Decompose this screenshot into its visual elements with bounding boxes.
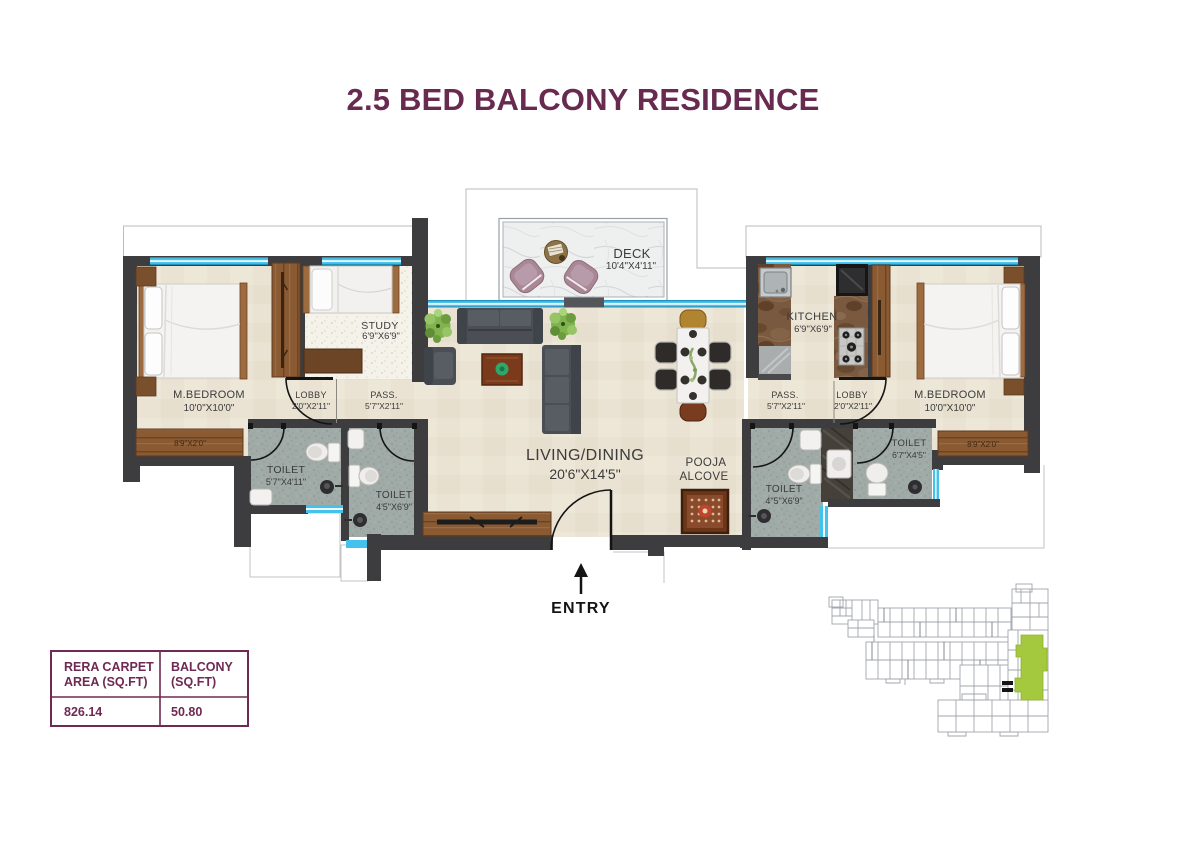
svg-text:(SQ.FT): (SQ.FT) (171, 675, 216, 689)
svg-text:4"5"X6'9": 4"5"X6'9" (765, 496, 802, 506)
svg-text:PASS.: PASS. (771, 390, 798, 400)
svg-text:ALCOVE: ALCOVE (679, 471, 728, 483)
svg-text:5'7"X2'11": 5'7"X2'11" (365, 401, 403, 411)
svg-text:4'5"X6'9": 4'5"X6'9" (376, 502, 412, 512)
svg-text:5'7"X2'11": 5'7"X2'11" (767, 401, 805, 411)
svg-text:6'9"X6'9": 6'9"X6'9" (362, 331, 400, 342)
svg-text:8'9"X2'0": 8'9"X2'0" (174, 439, 206, 448)
svg-text:LOBBY: LOBBY (295, 390, 327, 400)
svg-text:TOILET: TOILET (892, 438, 927, 449)
svg-text:LIVING/DINING: LIVING/DINING (526, 447, 644, 464)
svg-text:8'9"X2'0": 8'9"X2'0" (967, 440, 999, 449)
svg-text:2'0"X2'11": 2'0"X2'11" (292, 401, 330, 411)
svg-text:TOILET: TOILET (376, 490, 413, 501)
svg-text:TOILET: TOILET (766, 484, 803, 495)
svg-text:20'6"X14'5": 20'6"X14'5" (549, 466, 620, 482)
svg-text:6'9"X6'9": 6'9"X6'9" (794, 324, 832, 335)
svg-text:10'0"X10'0": 10'0"X10'0" (925, 403, 976, 414)
svg-text:6'7"X4'5": 6'7"X4'5" (892, 450, 926, 460)
svg-text:2.5 BED BALCONY RESIDENCE: 2.5 BED BALCONY RESIDENCE (347, 82, 820, 117)
svg-text:BALCONY: BALCONY (171, 660, 233, 674)
svg-text:DECK: DECK (613, 246, 650, 261)
svg-text:KITCHEN: KITCHEN (786, 311, 837, 323)
svg-text:2'0"X2'11": 2'0"X2'11" (834, 401, 872, 411)
svg-text:50.80: 50.80 (171, 705, 202, 719)
svg-text:5'7"X4'11": 5'7"X4'11" (266, 477, 306, 487)
svg-text:M.BEDROOM: M.BEDROOM (173, 389, 245, 401)
svg-text:PASS.: PASS. (370, 390, 397, 400)
svg-text:POOJA: POOJA (686, 457, 727, 469)
svg-text:AREA (SQ.FT): AREA (SQ.FT) (64, 675, 148, 689)
svg-text:LOBBY: LOBBY (836, 390, 868, 400)
svg-text:ENTRY: ENTRY (551, 600, 611, 617)
svg-text:RERA CARPET: RERA CARPET (64, 660, 154, 674)
svg-text:826.14: 826.14 (64, 705, 102, 719)
svg-text:10'0"X10'0": 10'0"X10'0" (184, 403, 235, 414)
svg-text:M.BEDROOM: M.BEDROOM (914, 389, 986, 401)
svg-text:TOILET: TOILET (267, 464, 306, 476)
svg-text:10'4"X4'11": 10'4"X4'11" (606, 261, 657, 272)
